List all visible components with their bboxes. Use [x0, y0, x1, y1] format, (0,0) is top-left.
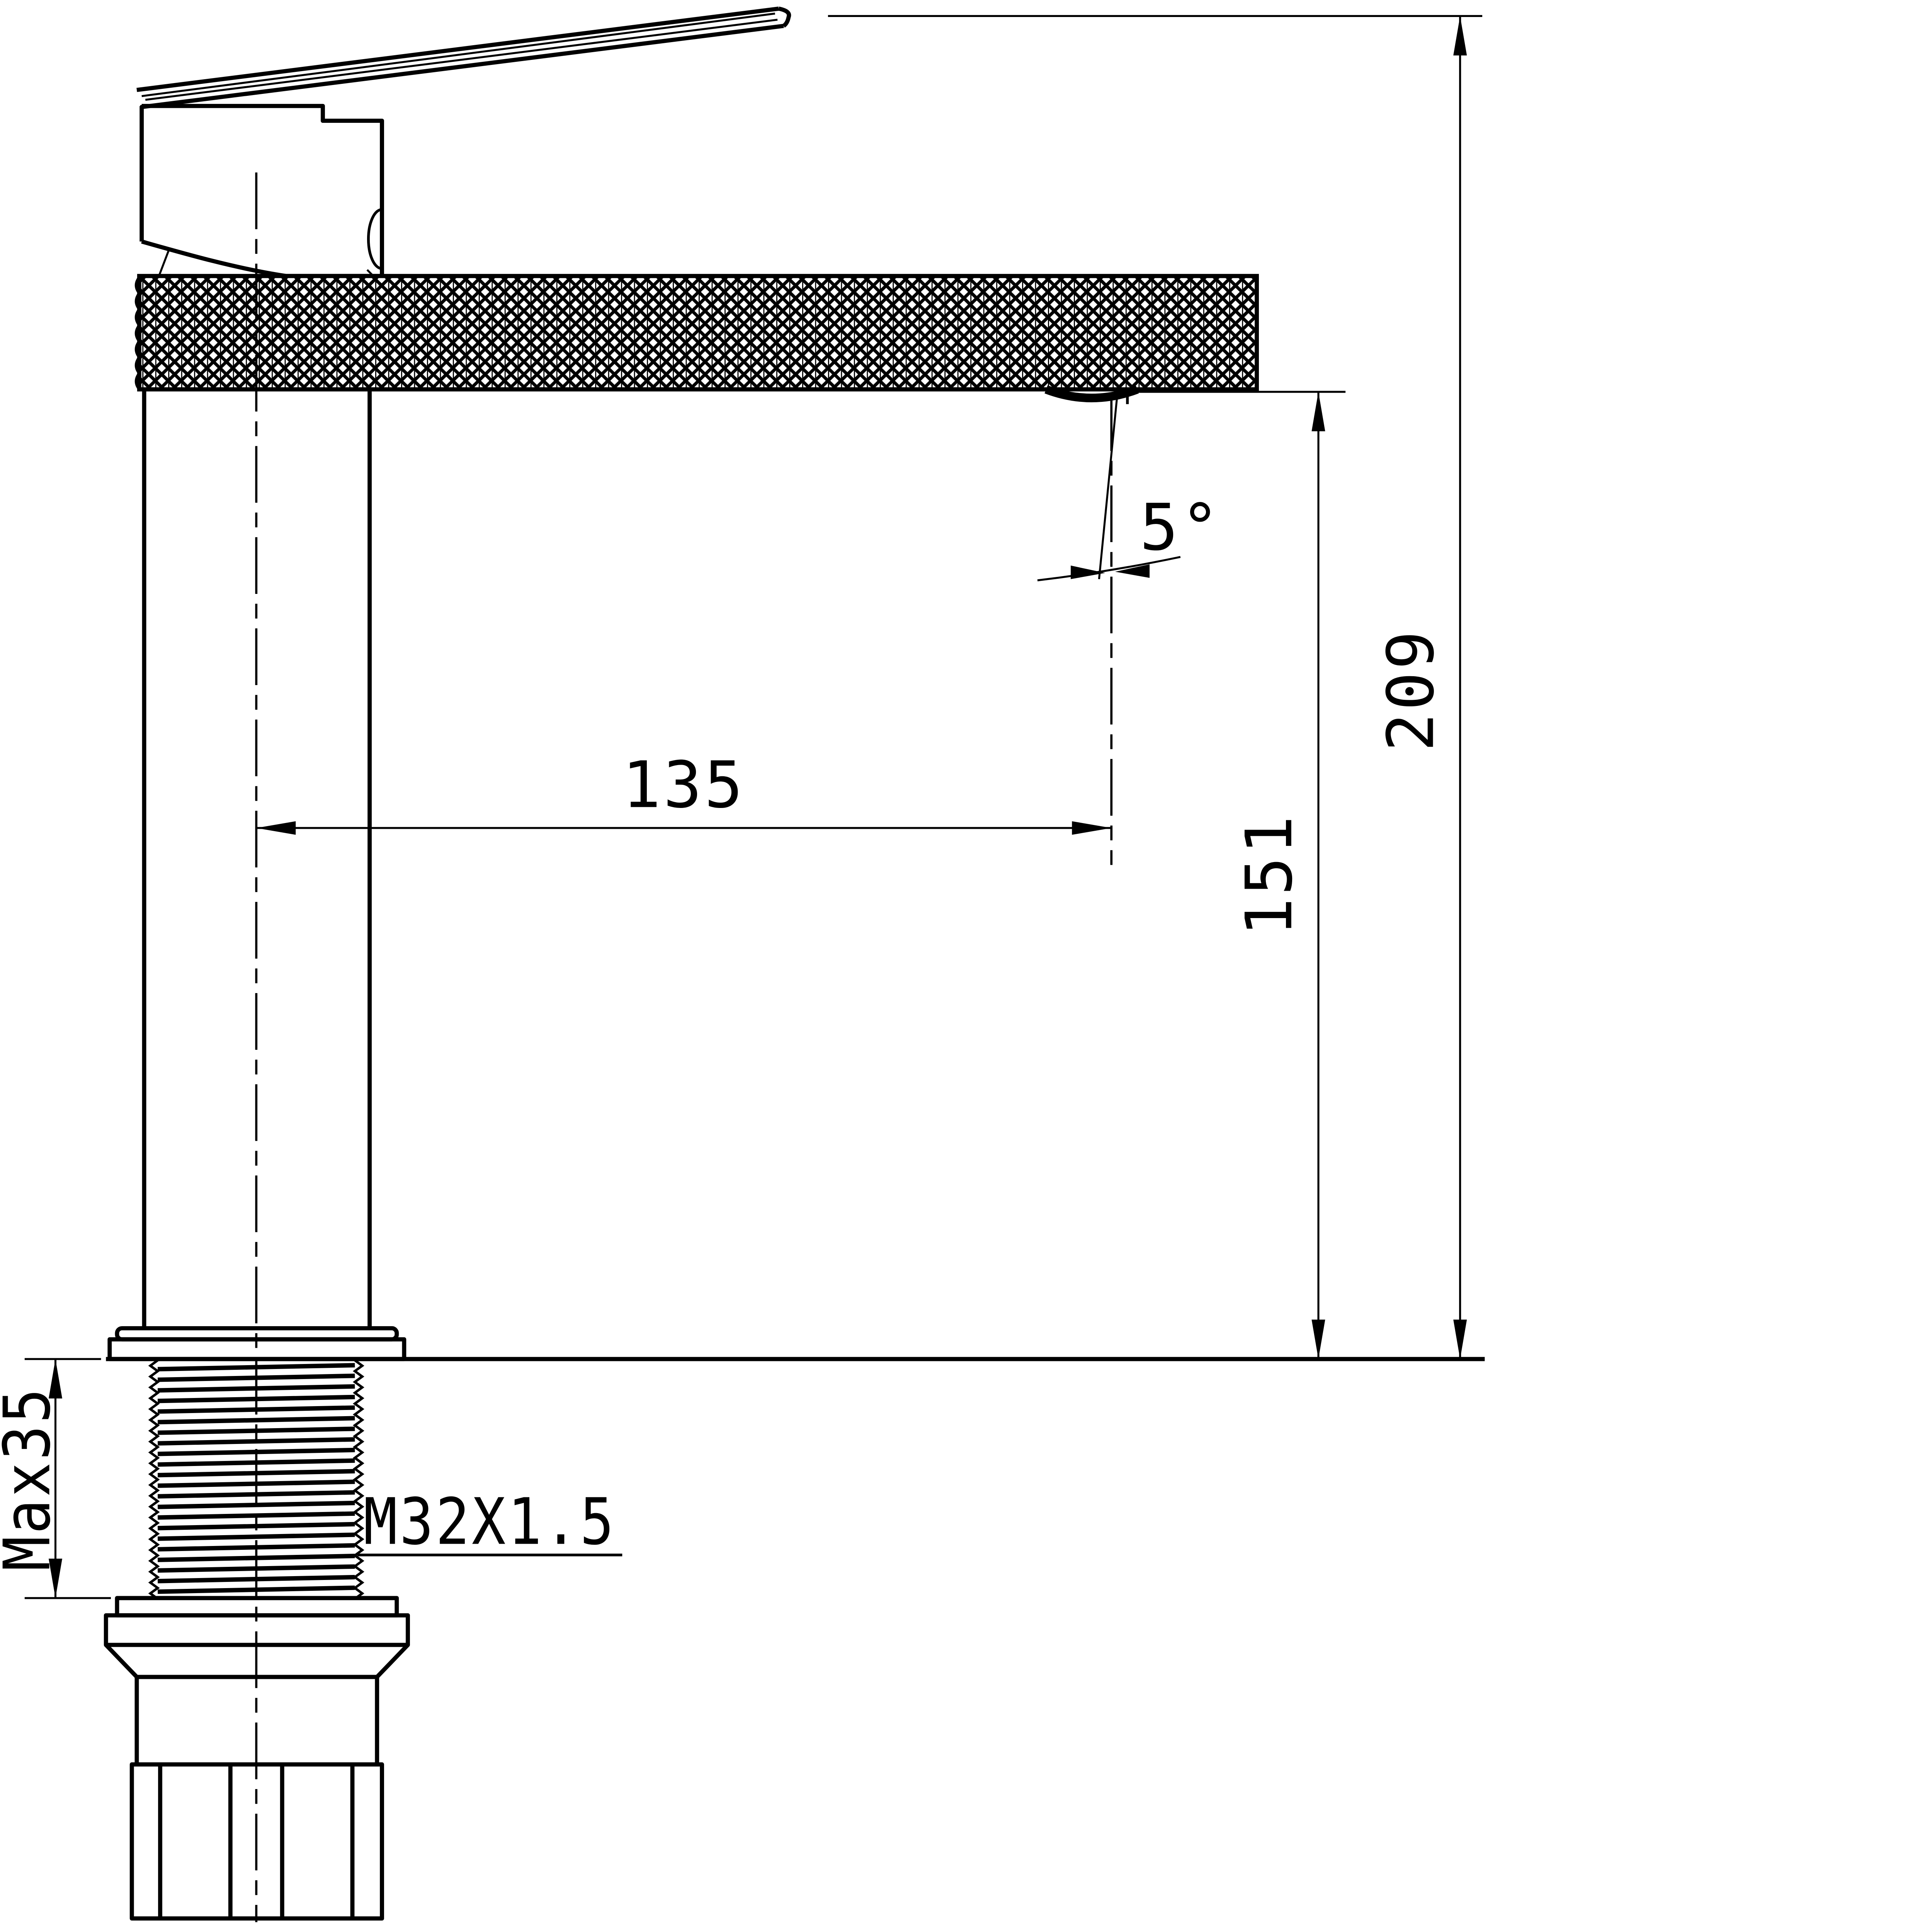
faucet-technical-drawing: 209 151 135 5° Max35 M32X1.5: [0, 0, 1932, 1932]
drawing-canvas: 209 151 135 5° Max35 M32X1.5: [0, 0, 1932, 1932]
dim-209-label: 209: [1374, 628, 1449, 752]
thread-spec-label: M32X1.5: [364, 1485, 616, 1560]
dim-151-label: 151: [1232, 813, 1307, 937]
knurled-spout: [136, 276, 1257, 404]
dim-max35-label: Max35: [0, 1386, 65, 1571]
dim-135-label: 135: [622, 748, 745, 823]
thread-callout: M32X1.5: [357, 1485, 622, 1560]
dim-5deg-label: 5°: [1140, 490, 1222, 565]
